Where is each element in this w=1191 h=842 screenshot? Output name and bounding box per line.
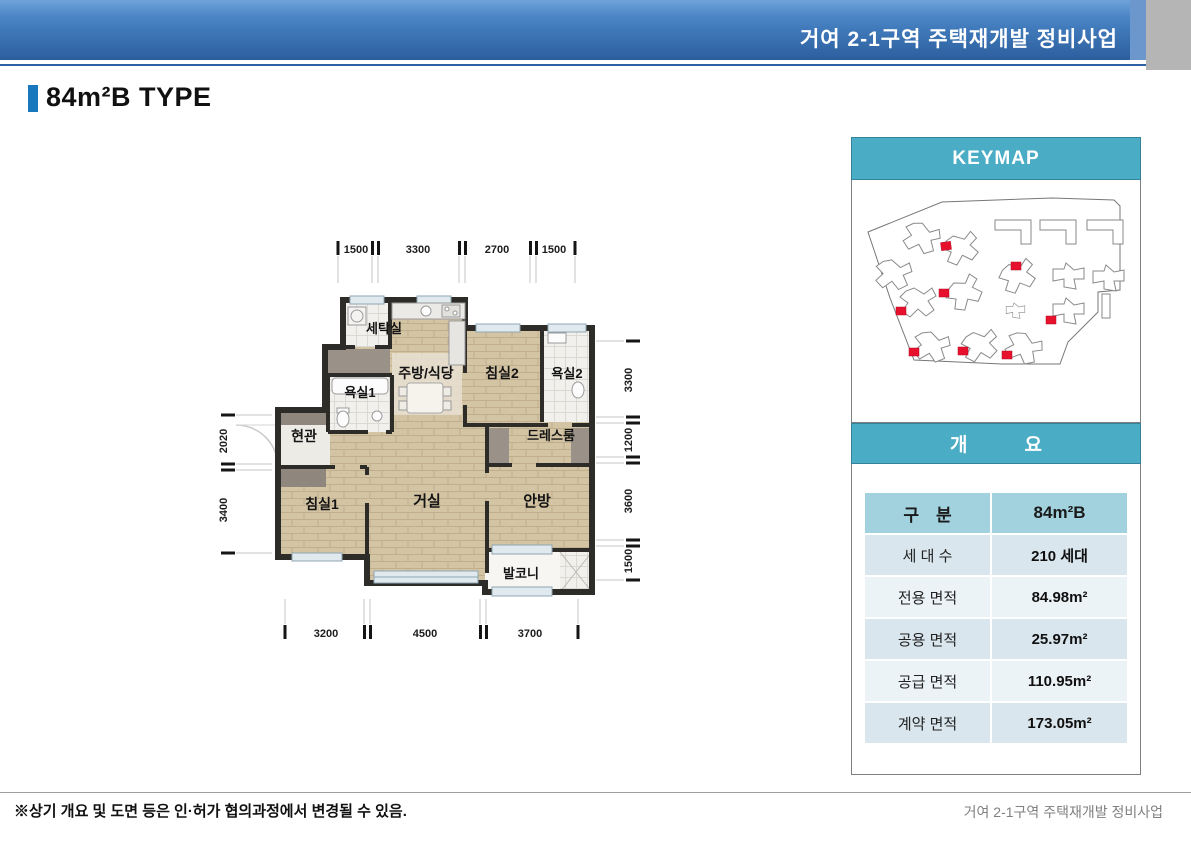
summary-table: 구 분 84m²B 세 대 수 210 세대 전용 면적 84.98m² 공용 … — [863, 491, 1129, 745]
floor-plan-svg: 세탁실 주방/식당 침실2 욕실2 욕실1 현관 드레스룸 침실1 거실 안방 … — [180, 225, 680, 655]
keymap-svg — [852, 180, 1140, 421]
dim-top-1500b: 1500 — [542, 244, 566, 256]
row-label-common-area: 공용 면적 — [865, 619, 990, 659]
header-accent-strip — [1130, 0, 1146, 60]
dim-left-3400: 3400 — [218, 498, 230, 522]
table-row: 공용 면적 25.97m² — [865, 619, 1127, 659]
dim-bottom-4500: 4500 — [413, 628, 437, 640]
row-value-exclusive-area: 84.98m² — [992, 577, 1127, 617]
footer-note: ※상기 개요 및 도면 등은 인·허가 협의과정에서 변경될 수 있음. — [14, 800, 407, 821]
keymap-title: KEYMAP — [952, 148, 1039, 170]
entrance-door-arc — [236, 425, 278, 467]
col-header-value: 84m²B — [992, 493, 1127, 533]
title-marker — [28, 85, 38, 112]
dim-top-1500a: 1500 — [344, 244, 368, 256]
table-row: 전용 면적 84.98m² — [865, 577, 1127, 617]
overview-box: 구 분 84m²B 세 대 수 210 세대 전용 면적 84.98m² 공용 … — [851, 464, 1141, 775]
room-label-entrance: 현관 — [291, 428, 317, 444]
dim-top-3300: 3300 — [406, 244, 430, 256]
overview-title: 개 요 — [950, 430, 1042, 457]
dim-bottom-3700: 3700 — [518, 628, 542, 640]
header-gray-block — [1146, 0, 1191, 70]
dim-right-3600: 3600 — [623, 489, 635, 513]
keymap-header: KEYMAP — [851, 137, 1141, 180]
room-label-master: 안방 — [523, 492, 551, 510]
footer-project-title: 거여 2-1구역 주택재개발 정비사업 — [964, 802, 1163, 822]
header-project-title: 거여 2-1구역 주택재개발 정비사업 — [800, 23, 1118, 53]
dim-left-2020: 2020 — [218, 429, 230, 453]
overview-header: 개 요 — [851, 423, 1141, 464]
dim-top-2700: 2700 — [485, 244, 509, 256]
row-label-contract-area: 계약 면적 — [865, 703, 990, 743]
row-value-contract-area: 173.05m² — [992, 703, 1127, 743]
room-label-bath1: 욕실1 — [344, 385, 375, 400]
header-underline — [0, 64, 1146, 66]
table-row: 공급 면적 110.95m² — [865, 661, 1127, 701]
room-label-bath2: 욕실2 — [551, 366, 582, 381]
row-value-supply-area: 110.95m² — [992, 661, 1127, 701]
dim-right-3300: 3300 — [623, 368, 635, 392]
page-title: 84m²B TYPE — [46, 82, 212, 113]
table-row: 세 대 수 210 세대 — [865, 535, 1127, 575]
room-label-kitchen-dining: 주방/식당 — [398, 365, 454, 381]
row-label-supply-area: 공급 면적 — [865, 661, 990, 701]
table-header-row: 구 분 84m²B — [865, 493, 1127, 533]
row-label-units: 세 대 수 — [865, 535, 990, 575]
col-header-label: 구 분 — [865, 493, 990, 533]
room-label-living: 거실 — [413, 493, 441, 510]
room-label-bedroom2: 침실2 — [485, 365, 519, 381]
room-label-bedroom1: 침실1 — [305, 496, 339, 512]
keymap-box — [851, 180, 1141, 423]
dim-right-1500: 1500 — [623, 549, 635, 573]
floor-plan: 세탁실 주방/식당 침실2 욕실2 욕실1 현관 드레스룸 침실1 거실 안방 … — [180, 225, 680, 655]
room-label-balcony: 발코니 — [503, 566, 539, 581]
table-row: 계약 면적 173.05m² — [865, 703, 1127, 743]
row-label-exclusive-area: 전용 면적 — [865, 577, 990, 617]
dim-right-1200: 1200 — [623, 428, 635, 452]
row-value-common-area: 25.97m² — [992, 619, 1127, 659]
room-label-dressroom: 드레스룸 — [527, 428, 575, 443]
dim-bottom-3200: 3200 — [314, 628, 338, 640]
room-label-laundry: 세탁실 — [366, 321, 402, 336]
footer-divider — [0, 792, 1191, 793]
row-value-units: 210 세대 — [992, 535, 1127, 575]
header-bar: 거여 2-1구역 주택재개발 정비사업 — [0, 0, 1130, 60]
